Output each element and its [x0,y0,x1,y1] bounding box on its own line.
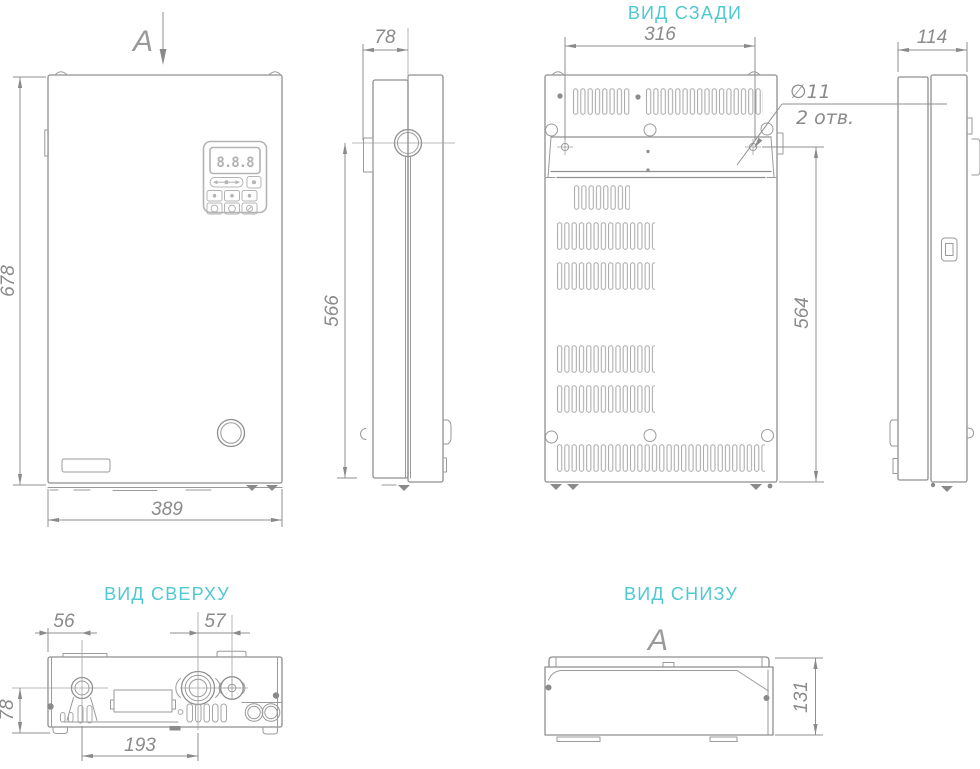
dim-top-56: 56 [53,611,75,632]
vent-slots [573,185,630,210]
display-digits: 8.8.8 [216,155,254,171]
vent-slots [572,88,630,115]
bottom-view-title: ВИД СНИЗУ [624,584,738,604]
dim-front-width: 389 [151,499,183,520]
rear-bracket-edge [443,420,451,472]
technical-drawing: 8.8.8 [0,0,980,769]
vent-slots [556,222,655,250]
left-body-rear [898,77,928,480]
screw [764,695,770,701]
dim-rear-height: 564 [792,297,813,329]
dim-bottom-depth: 131 [791,681,812,713]
hole [546,124,558,136]
section-label: A [646,624,668,657]
side-tab [967,118,972,134]
vent-slots [556,444,765,472]
section-label: A [131,25,153,58]
vent-slots [556,345,655,373]
vent-slots [556,385,655,413]
side-tab [777,133,783,154]
left-body-front [931,75,967,482]
dim-front-height: 678 [0,265,19,297]
right-arrow-icon [236,180,241,184]
top-view-title: ВИД СВЕРХУ [104,584,230,604]
screw [557,93,562,98]
screw [546,685,552,691]
foot [710,737,737,742]
dim-top-57: 57 [204,611,227,632]
side-door [373,80,408,478]
center-tab [663,663,674,668]
hole [644,430,656,442]
section-arrow-head [160,49,167,65]
side-hook [967,428,974,438]
dim-top-78: 78 [0,699,18,721]
side-body [408,75,443,482]
terminal-block [114,690,172,712]
front-body [48,75,282,483]
screw [47,703,53,709]
latch [170,726,181,731]
left-side-view: 114 [890,27,980,492]
screw [635,94,640,99]
switch [942,238,958,261]
rear-brackets [890,420,898,474]
vent-slots [61,704,227,723]
control-panel-keypad: 8.8.8 [204,142,267,215]
hole [644,124,656,136]
dim-side-height: 566 [322,295,343,327]
rear-view-title: ВИД СЗАДИ [628,3,742,23]
vent-slots [645,88,763,115]
side-bracket [972,139,980,175]
top-view: ВИД СВЕРХУ [0,584,282,761]
panel-fold-line [549,671,769,692]
nameplate-label [62,459,110,472]
screw [273,692,279,698]
hole [546,431,558,443]
hole-diameter-note: ∅11 [790,81,831,103]
top-strip [549,657,769,667]
left-arrow-icon [213,180,218,184]
dim-top-193: 193 [124,735,156,756]
sight-window [218,420,245,447]
dim-left-depth: 114 [917,27,947,48]
drawing-svg: 8.8.8 [0,0,980,769]
hole [762,430,774,442]
dim-rear-hole-span: 316 [644,24,676,45]
bottom-view: ВИД СНИЗУ A 131 [545,584,823,742]
top-tab [217,651,246,657]
side-view: 78 566 [322,27,455,491]
hole-count-note: 2 отв. [796,107,854,129]
rear-view: ВИД СЗАДИ [545,3,947,490]
foot [53,727,68,734]
foot [557,737,600,742]
vent-slots [556,262,655,290]
front-view: 8.8.8 [0,12,282,527]
bottom-body [545,667,773,735]
foot [263,727,278,734]
dim-side-depth: 78 [374,27,396,48]
door-handle [361,429,367,440]
